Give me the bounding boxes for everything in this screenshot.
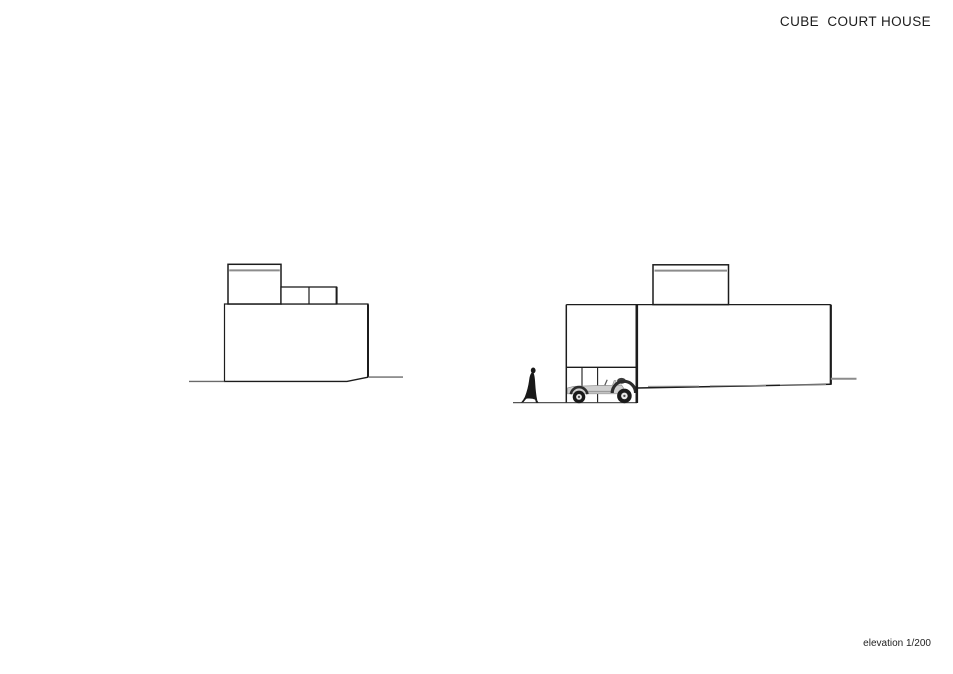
- car-windshield: [605, 380, 607, 385]
- main-volume-bottom: [225, 377, 369, 381]
- person-body: [523, 373, 537, 401]
- right-elevation-drawing: [513, 265, 857, 403]
- scale-label: elevation 1/200: [863, 638, 931, 649]
- person-head: [531, 368, 536, 374]
- main-volume-outline: [225, 304, 369, 381]
- car-front-hub: [578, 396, 580, 398]
- person-figure: [521, 368, 539, 403]
- elevations-drawing: [0, 0, 953, 674]
- left-elevation-drawing: [189, 264, 403, 381]
- drawing-sheet: CUBE COURT HOUSE: [0, 0, 953, 674]
- grade-dash: [710, 385, 766, 386]
- car-figure: [568, 378, 636, 403]
- car-rear-hub: [623, 395, 625, 397]
- person-front-leg: [521, 397, 527, 402]
